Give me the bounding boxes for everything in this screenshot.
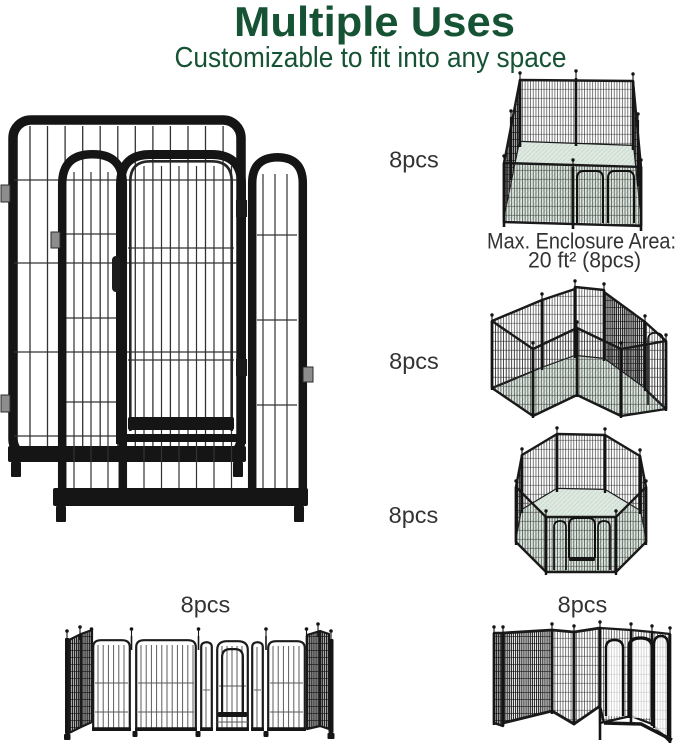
svg-text:8pcs: 8pcs [389,348,439,374]
svg-text:Multiple Uses: Multiple Uses [234,0,515,45]
svg-text:8pcs: 8pcs [558,592,608,618]
svg-text:Customizable to fit into any s: Customizable to fit into any space [175,42,567,74]
svg-text:8pcs: 8pcs [181,592,231,618]
svg-text:20 ft² (8pcs): 20 ft² (8pcs) [528,248,641,273]
svg-text:8pcs: 8pcs [389,502,439,528]
svg-text:8pcs: 8pcs [389,147,439,173]
